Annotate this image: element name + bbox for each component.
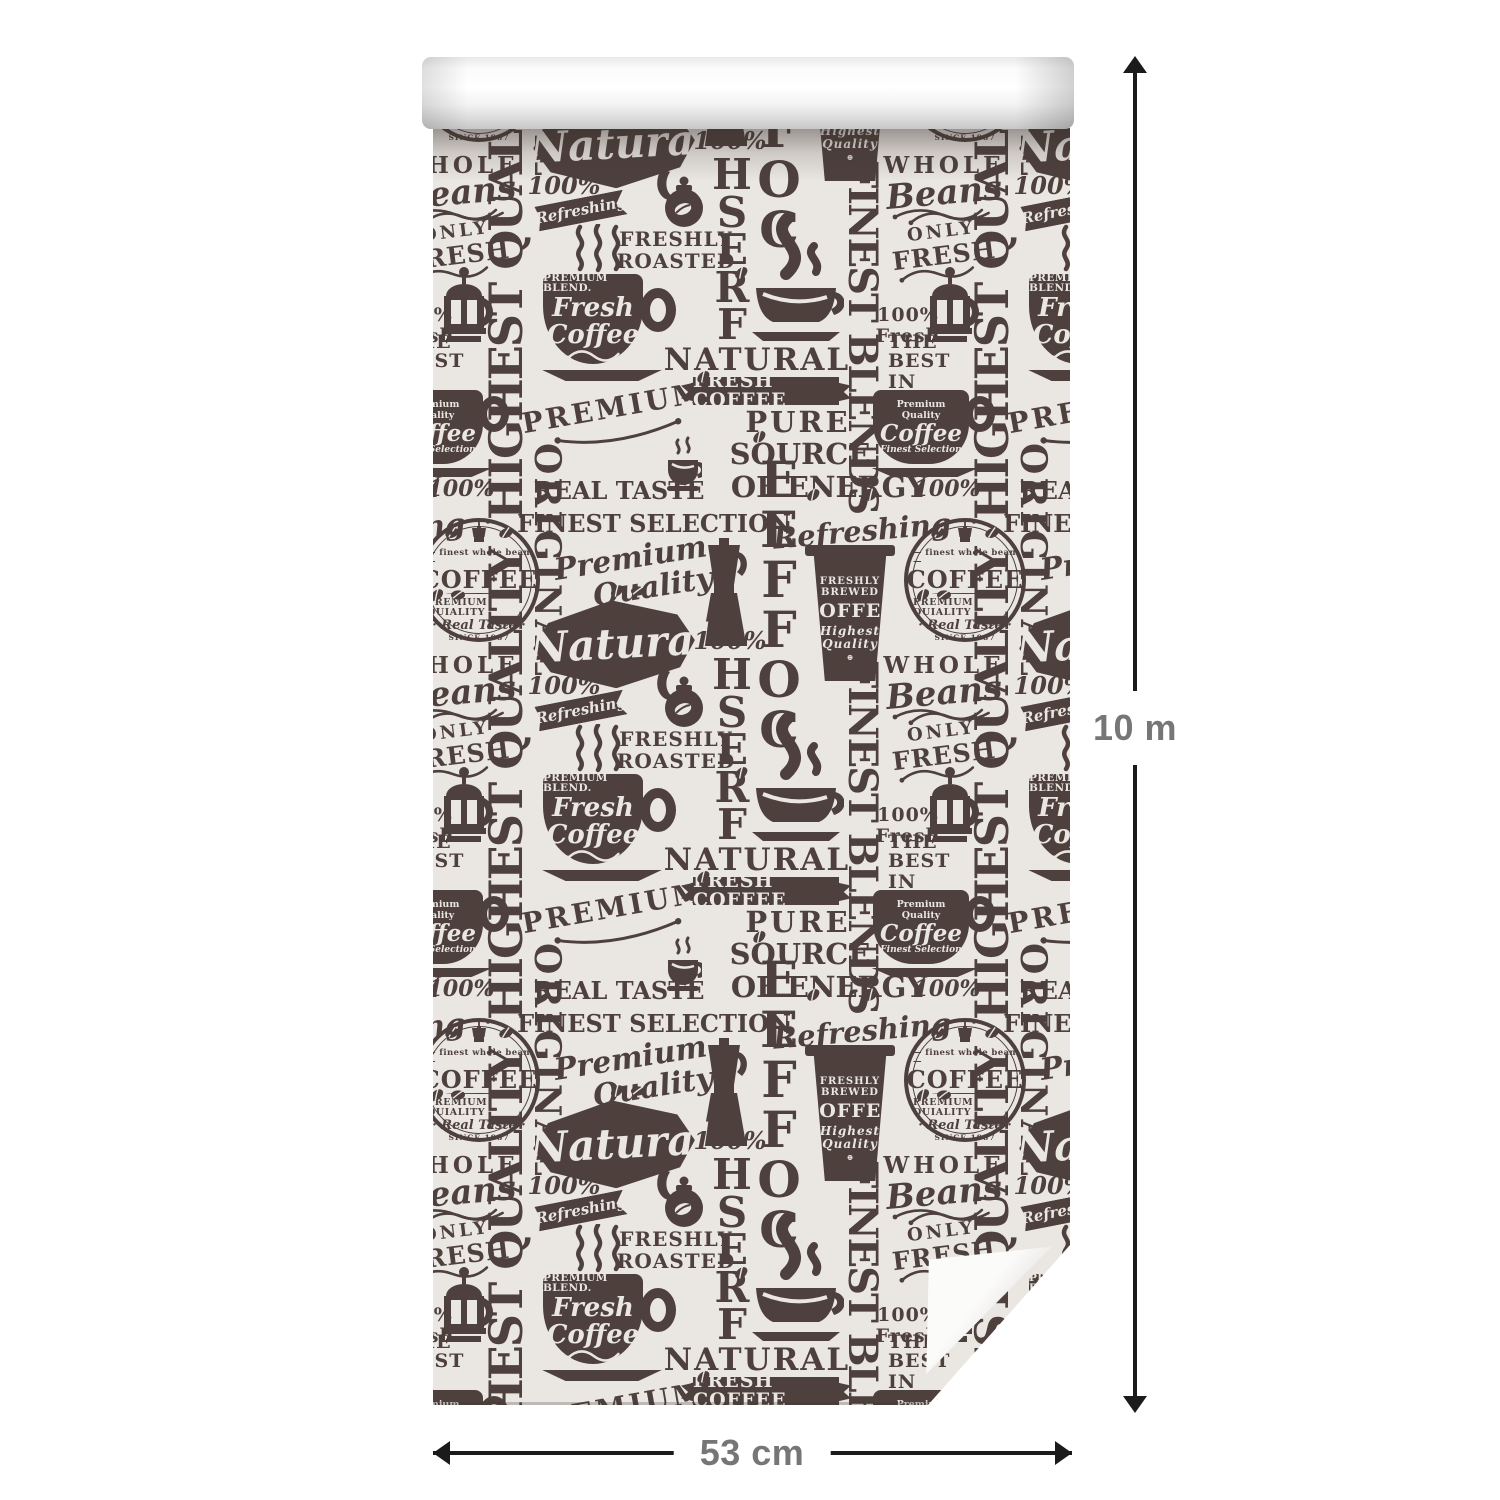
pattern-coffee-bean [805,988,821,1000]
pattern-coffee-bean [433,1088,459,1102]
pattern-hundred-percent: 100% [1026,672,1070,699]
pattern-hundred-percent-3: 100% [918,977,976,1001]
pattern-steam-cup-large [748,212,844,348]
pattern-real-taste: REAL TASTE [1051,978,1070,1004]
pattern-premium-coffee-cup: Premium QualityCoffeeFinest Selection [433,390,505,476]
pattern-steaming-cup-small [666,436,702,500]
pattern-coffee-bean [609,1084,639,1098]
pattern-coffee-badge: — finest whole bean — COFFEE PREMIUM QUI… [904,128,1026,142]
arrowhead-down-icon [1123,1396,1147,1413]
sheet-bottom-edge [433,1402,933,1405]
pattern-hundred-percent: 100% [540,1172,588,1199]
pattern-hundred-percent-3: 100% [433,477,490,501]
pattern-best-in-town: THE BESTIN TOWN [433,1352,508,1392]
arrowhead-right-icon [1055,1441,1072,1465]
pattern-premium-coffee-cup: Premium QualityCoffeeFinest Selection [433,890,505,976]
pattern-finest-selection: FINEST SELECTION [565,510,743,537]
pattern-finest-selection: FINEST SELECTION [565,1010,743,1037]
pattern-fresh-coffee-cup: PREMIUM BLEND.FreshCoffee [543,1274,683,1392]
pattern-coffee-bean [733,266,749,278]
pattern-hundred-percent: 100% [1026,1172,1070,1199]
pattern-coffee-bean [433,588,459,602]
pattern-coffee-bean [733,1266,749,1278]
pattern-real-taste: REAL TASTE [1051,478,1070,504]
arrowhead-up-icon [1123,56,1147,73]
roll-tube [422,57,1074,129]
pattern-hundred-percent-3: 100% [433,977,490,1001]
pattern-kettle [652,164,704,230]
pattern-coffee-bean [915,1088,945,1102]
pattern-hundred-percent: 100% [540,672,588,699]
product-image: HIGHEST QUALITYHIGHEST QUALITYHIGHEST QU… [0,0,1500,1500]
pattern-steam-cup-large [748,1212,844,1348]
pattern-steam-cup-large [748,712,844,848]
pattern-real-taste: REAL TASTE [565,478,673,504]
pattern-finest-selection: FINEST SELECTION [1051,1010,1070,1037]
pattern-coffee-bean [751,930,767,942]
pattern-coffee-bean [733,766,749,778]
pattern-best-in-town: THE BESTIN TOWN [433,352,508,392]
pattern-finest-blends-vertical: FINEST BLENDS [842,1160,882,1405]
pattern-coffee-bean [863,488,879,500]
pattern-coffee-bean [863,988,879,1000]
pattern-fresh-coffee-cup: PREMIUM BLEND.FreshCoffee [543,274,683,392]
pattern-hundred-percent: 100% [1026,172,1070,199]
pattern-best-in-town: THE BESTIN TOWN [433,852,508,892]
pattern-fresh-coffee-cup: PREMIUM BLEND.FreshCoffee [543,774,683,892]
wallpaper-sheet: HIGHEST QUALITYHIGHEST QUALITYHIGHEST QU… [433,128,1070,1405]
pattern-coffee-bean [695,870,711,882]
width-label: 53 cm [674,1430,831,1476]
pattern-fresh-coffee-cup: PREMIUM BLEND.FreshCoffee [1029,774,1070,892]
pattern-coffee-bean [805,488,821,500]
pattern-kettle [652,664,704,730]
pattern-fresh-coffee-cup: PREMIUM BLEND.FreshCoffee [1029,274,1070,392]
pattern-finest-selection: FINEST SELECTION [1051,510,1070,537]
pattern-premium-coffee-cup: Premium QualityCoffeeFinest Selection [873,890,991,976]
pattern-best-in-town: THE BESTIN TOWN [888,852,994,892]
pattern-best-in-town: THE BESTIN TOWN [888,352,994,392]
pattern-real-taste: REAL TASTE [565,978,673,1004]
pattern-coffee-bean [695,1370,711,1382]
pattern-coffee-bean [695,370,711,382]
pattern-premium-coffee-cup: Premium QualityCoffeeFinest Selection [873,390,991,476]
pattern-coffee-bean [751,430,767,442]
pattern-coffee-bean [609,584,639,598]
pattern-steaming-cup-small [666,936,702,1000]
pattern-layer: HIGHEST QUALITYHIGHEST QUALITYHIGHEST QU… [433,128,1070,1405]
pattern-kettle [652,1164,704,1230]
arrowhead-left-icon [433,1441,450,1465]
pattern-coffee-bean [915,588,945,602]
pattern-hundred-percent: 100% [540,172,588,199]
height-label: 10 m [1085,691,1185,765]
pattern-hundred-percent-3: 100% [918,477,976,501]
